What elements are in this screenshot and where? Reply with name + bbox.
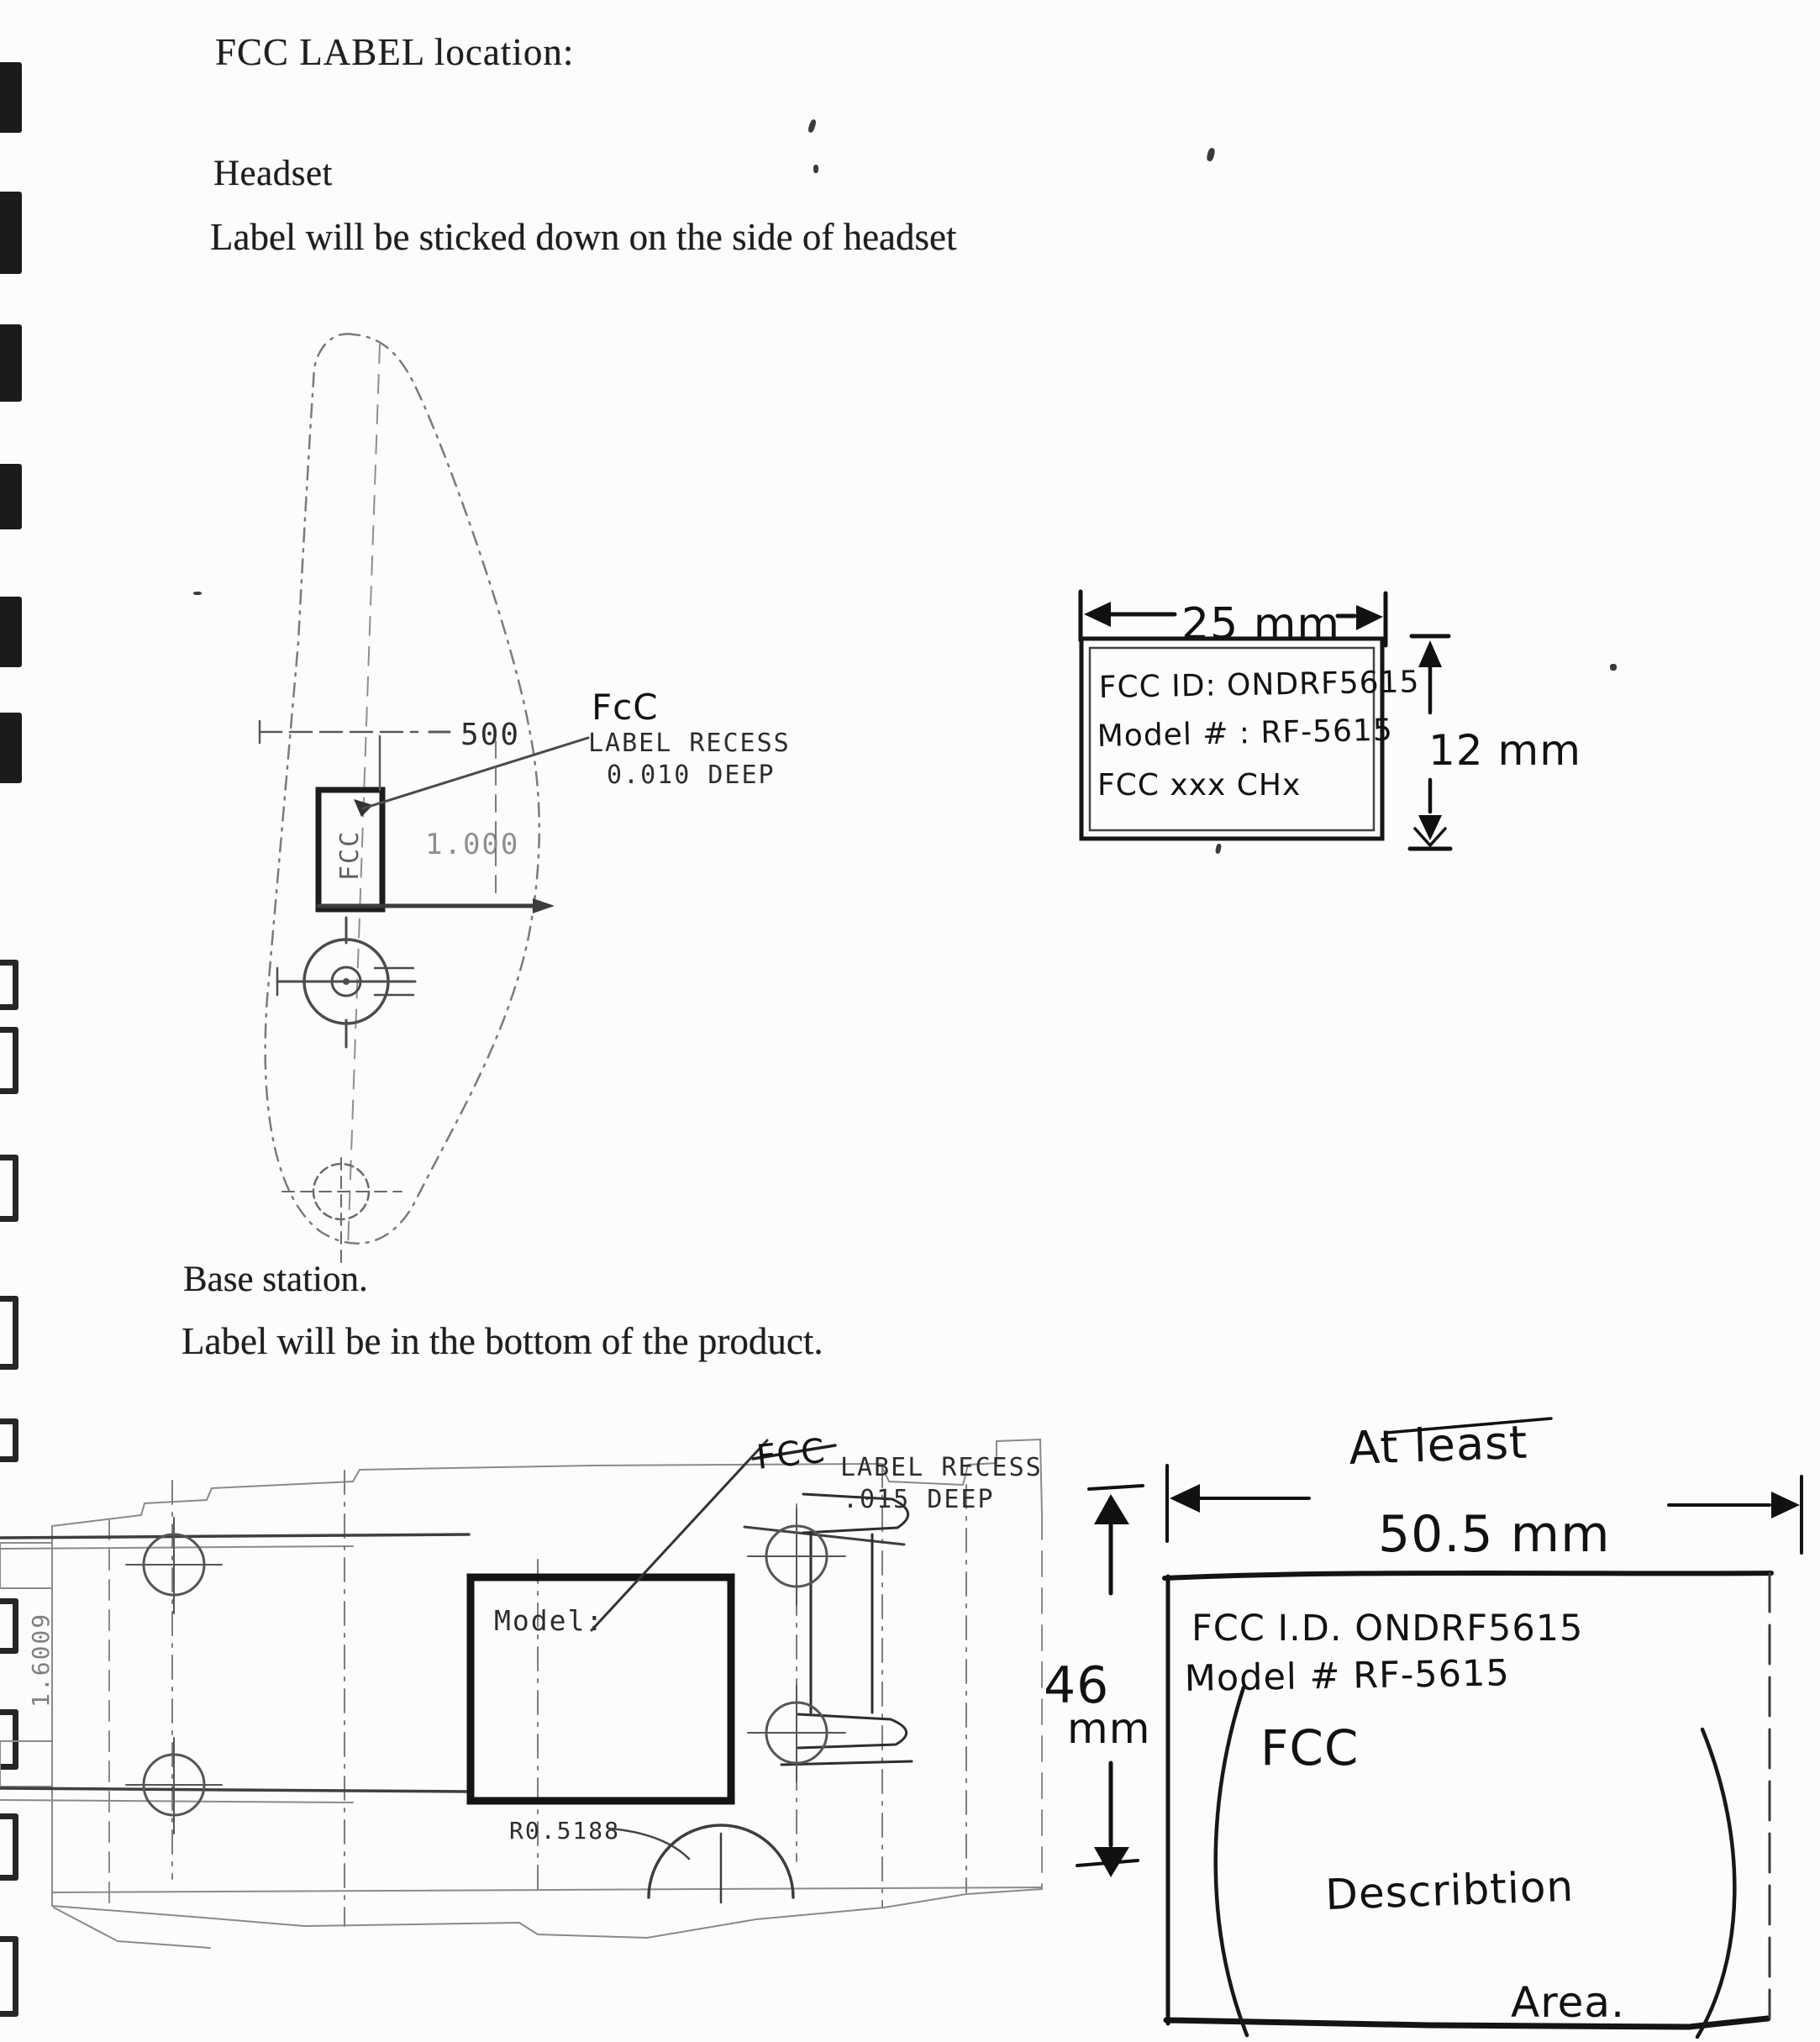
headset-note-fcc: FcC <box>592 687 659 728</box>
base-note-line3: .015 DEEP <box>843 1485 995 1514</box>
base-recess-leader <box>592 1440 767 1630</box>
headset-label-line1: FCC ID: ONDRF5615 <box>1098 665 1419 705</box>
headset-label-line3: FCC xxx CHx <box>1097 768 1301 803</box>
headset-outline <box>266 334 539 1243</box>
base-label-line1: FCC I.D. ONDRF5615 <box>1191 1608 1583 1650</box>
headset-recess-text: FCC <box>335 830 365 881</box>
base-model-text: Model: <box>494 1604 604 1637</box>
base-label-width-dim: 50.5 mm <box>1378 1505 1611 1564</box>
base-radius-text: R0.5188 <box>509 1817 620 1845</box>
headset-drawing: FCC 500 1.000 FcC LABEL RECESS 0.010 DEE… <box>260 334 791 1262</box>
headset-label-line2: Model # : RF-5615 <box>1097 713 1393 754</box>
drawings-layer: FCC 500 1.000 FcC LABEL RECESS 0.010 DEE… <box>0 0 1820 2042</box>
headset-dim-1000-text: 1.000 <box>425 828 519 861</box>
base-note-line2: LABEL RECESS <box>840 1453 1043 1482</box>
area-paren-left <box>1216 1687 1247 2035</box>
base-label-area-word1: FCC <box>1260 1719 1359 1776</box>
base-station-drawing: Model: FCC LABEL RECESS .015 DEEP R0.518… <box>0 1432 1043 1948</box>
base-label-line2: Model # RF-5615 <box>1184 1652 1510 1700</box>
base-label-area-word3: Area. <box>1511 1978 1625 2027</box>
headset-label-sketch: 25 mm FCC ID: ONDRF5615 Model # : RF-561… <box>1081 592 1581 849</box>
base-side-dim-text: 1.6009 <box>27 1613 55 1708</box>
area-paren-right <box>1697 1729 1734 2037</box>
base-centerlines <box>172 1464 966 1926</box>
headset-note-line3: 0.010 DEEP <box>607 760 776 790</box>
headset-note-line2: LABEL RECESS <box>588 729 791 758</box>
base-radius-leader <box>610 1829 689 1859</box>
scanned-document-page: FCC LABEL location: Headset Label will b… <box>0 0 1820 2042</box>
headset-centerline <box>348 345 380 1249</box>
base-outline <box>0 1439 1042 1948</box>
base-label-height-unit: mm <box>1067 1704 1150 1753</box>
headset-label-height-text: 12 mm <box>1428 726 1581 775</box>
headset-speaker <box>277 918 415 1047</box>
base-label-area-word2: Describtion <box>1324 1862 1575 1919</box>
base-screw-holes <box>126 1509 845 1834</box>
base-label-width-note: At least <box>1348 1416 1528 1475</box>
base-note-fcc: FCC <box>755 1432 827 1477</box>
headset-dim-500-text: 500 <box>460 718 520 752</box>
headset-label-width-dim: 25 mm <box>1181 599 1340 650</box>
base-label-sketch: At least 50.5 mm FCC I.D. ONDRF5615 Mode… <box>1044 1416 1802 2037</box>
base-right-bracket <box>781 1494 912 1765</box>
